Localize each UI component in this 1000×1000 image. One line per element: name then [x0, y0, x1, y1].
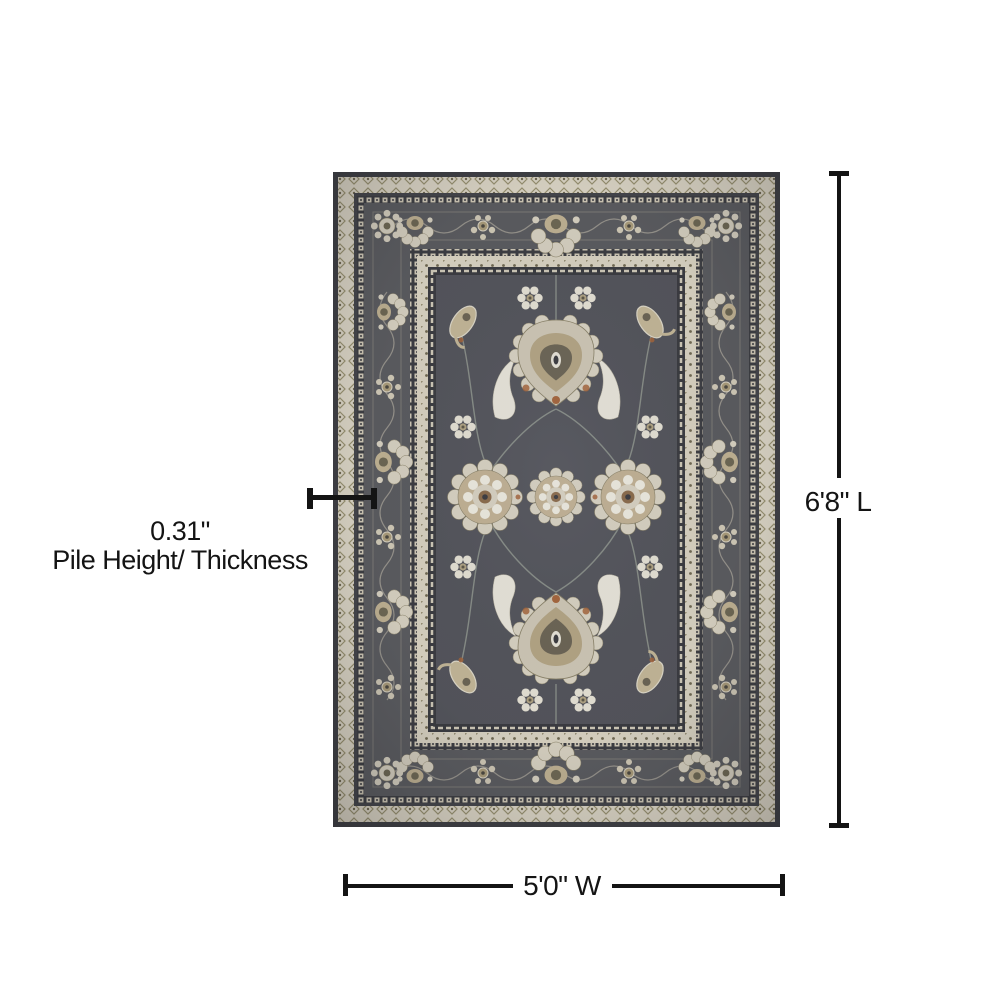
- length-dim-cap-bottom: [829, 823, 849, 828]
- length-dim-line-lower: [837, 518, 841, 823]
- width-dim-label: 5'0" W: [512, 870, 612, 902]
- length-dim-line-upper: [837, 171, 841, 478]
- width-dim-cap-right: [780, 874, 785, 896]
- rug-photo-vignette: [333, 172, 780, 827]
- product-dimension-image: 6'8" L 5'0" W 0.31" Pile Height/ Thickne…: [0, 0, 1000, 1000]
- pile-dim-line: [307, 495, 377, 500]
- width-dim-line-right: [612, 884, 785, 888]
- rug-image: [333, 172, 780, 827]
- pile-height-label: Pile Height/ Thickness: [30, 546, 330, 575]
- pile-height-annotation: 0.31" Pile Height/ Thickness: [30, 517, 330, 575]
- width-dim-line-left: [343, 884, 513, 888]
- pile-dim-cap-right: [371, 488, 377, 509]
- pile-height-value: 0.31": [30, 517, 330, 546]
- length-dim-label: 6'8" L: [788, 486, 888, 518]
